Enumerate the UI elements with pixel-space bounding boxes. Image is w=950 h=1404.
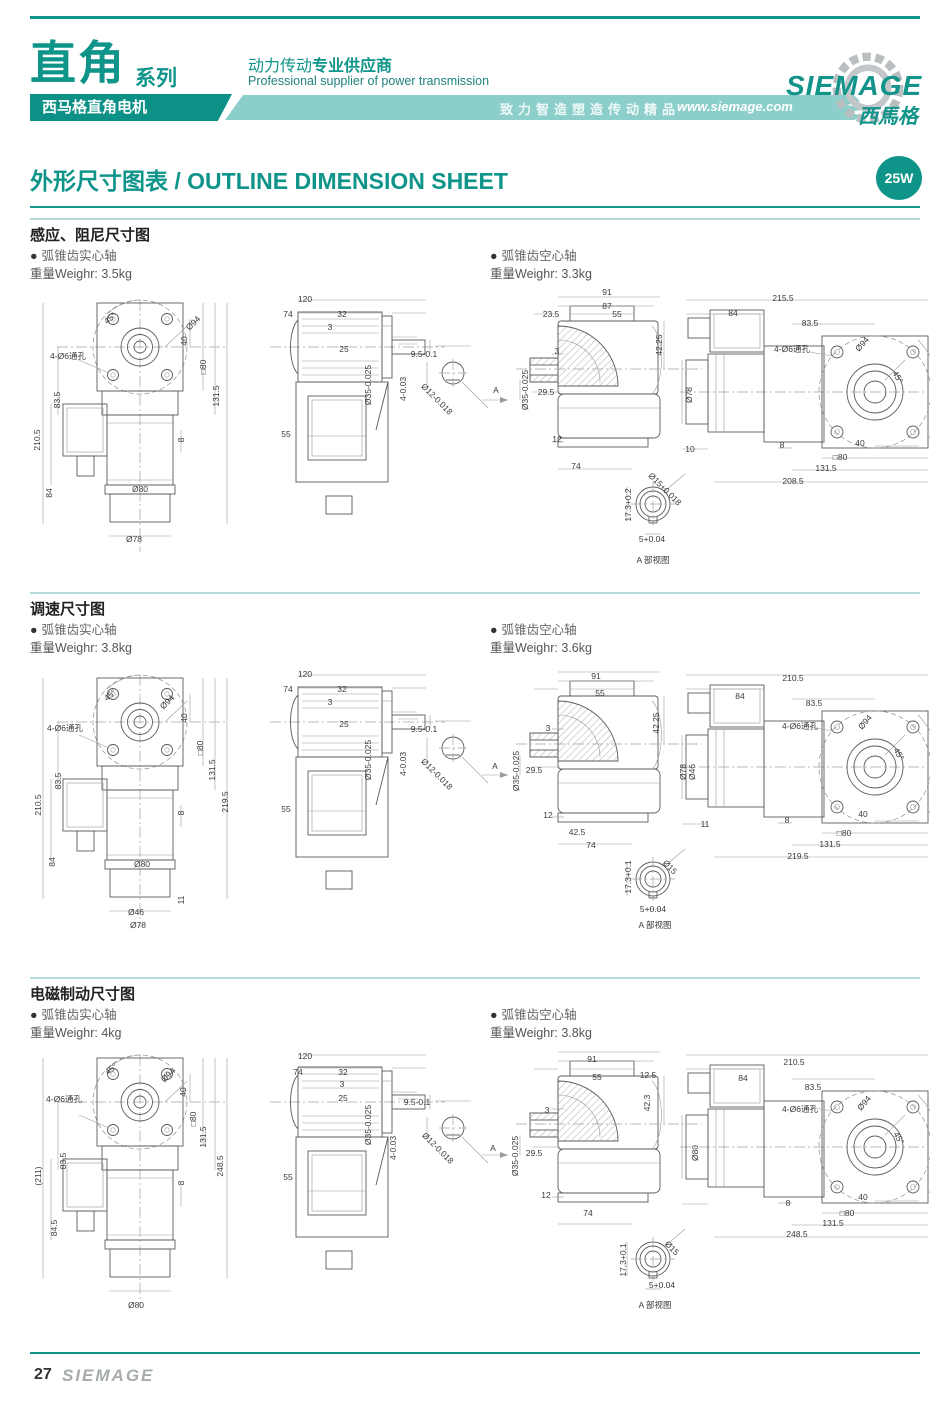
dim-label: 32 <box>337 684 346 694</box>
bullet-solid-shaft: ●弧锥齿实心轴 <box>30 619 117 638</box>
dim-label: 83.5 <box>806 698 823 708</box>
dim-label: 8 <box>785 815 790 825</box>
dim-label: 11 <box>701 819 710 829</box>
dim-label: 9.5-0.1 <box>404 1097 430 1107</box>
dim-label: 17.3+0.1 <box>618 1243 628 1276</box>
bullet-hollow-shaft: ●弧锥齿空心轴 <box>490 245 577 264</box>
dim-label: 83.5 <box>805 1082 822 1092</box>
logo-text: SIEMAGE <box>786 70 922 102</box>
section-divider <box>30 218 920 220</box>
dim-label: 5+0.04 <box>640 904 666 914</box>
dim-label: Ø35-0.025 <box>511 751 521 791</box>
dim-label: 131.5 <box>207 759 217 780</box>
dim-label: A <box>492 761 498 771</box>
dim-label: Ø46 <box>128 907 144 917</box>
dim-label: 84 <box>735 691 744 701</box>
dim-label: Ø78 <box>684 387 694 403</box>
dim-label: Ø35-0.025 <box>363 365 373 405</box>
bullet-icon: ● <box>30 623 38 637</box>
dim-label: 25 <box>339 344 348 354</box>
bullet-label: 弧锥齿空心轴 <box>502 249 577 263</box>
dim-label: 40 <box>179 713 189 722</box>
catalog-page: 直角 系列 西马格直角电机 致力智造塑造传动精品 www.siemage.com… <box>0 0 950 1404</box>
dim-label: 29.5 <box>526 1148 543 1158</box>
dim-label: 84 <box>738 1073 747 1083</box>
bullet-label: 弧锥齿实心轴 <box>42 623 117 637</box>
section-divider <box>30 592 920 594</box>
dim-label: 9.5-0.1 <box>411 724 437 734</box>
dim-label: Ø80 <box>134 859 150 869</box>
weight-label: 重量Weighr: 3.8kg <box>490 1022 592 1041</box>
dim-label: 4-Ø6通孔 <box>46 1093 82 1105</box>
section-title: 调速尺寸图 <box>30 598 105 619</box>
dim-label: 3 <box>340 1079 345 1089</box>
dim-label: 248.5 <box>786 1229 807 1239</box>
dim-label: A <box>490 1143 496 1153</box>
bullet-icon: ● <box>490 623 498 637</box>
dim-label: Ø78 <box>130 920 146 930</box>
dim-label: 219.5 <box>220 791 230 812</box>
weight-label: 重量Weighr: 3.3kg <box>490 263 592 282</box>
dim-label: 3 <box>555 346 560 356</box>
dim-label: 40 <box>855 438 864 448</box>
dim-label: 55 <box>595 688 604 698</box>
section-divider <box>30 977 920 979</box>
dim-label: 17.3+0.2 <box>623 488 633 521</box>
dim-label: 55 <box>592 1072 601 1082</box>
dim-label: 210.5 <box>782 673 803 683</box>
dim-label: 40 <box>179 336 189 345</box>
dim-label: 8 <box>176 438 186 443</box>
dim-label: 25 <box>338 1093 347 1103</box>
dim-label: 74 <box>293 1067 302 1077</box>
dim-label: 42.3 <box>642 1095 652 1112</box>
dim-label: 4-Ø6通孔 <box>774 343 810 355</box>
top-rule <box>30 16 920 19</box>
bullet-label: 弧锥齿实心轴 <box>42 1008 117 1022</box>
dim-label: 4-Ø6通孔 <box>47 722 83 734</box>
dim-label: 83.5 <box>58 1153 68 1170</box>
bullet-solid-shaft: ●弧锥齿实心轴 <box>30 245 117 264</box>
dim-label: 8 <box>176 811 186 816</box>
dim-label: 74 <box>571 461 580 471</box>
page-number: 27 <box>34 1366 52 1384</box>
dim-label: 8 <box>176 1181 186 1186</box>
band-slogan: 致力智造塑造传动精品 <box>500 99 680 118</box>
dim-label: Ø80 <box>128 1300 144 1310</box>
dim-label: 25 <box>339 719 348 729</box>
dim-label: □80 <box>188 1112 198 1127</box>
dim-label: 23.5 <box>543 309 560 319</box>
dim-label: 3 <box>545 1105 550 1115</box>
title-rule <box>30 206 920 208</box>
weight-label: 重量Weighr: 3.6kg <box>490 637 592 656</box>
dim-label: 32 <box>337 309 346 319</box>
subtitle-box: 西马格直角电机 <box>30 94 232 121</box>
dim-label: Ø80 <box>690 1145 700 1161</box>
dim-label: 74 <box>586 840 595 850</box>
dim-label: 42.5 <box>569 827 586 837</box>
dim-label: □80 <box>833 452 848 462</box>
technical-drawing: 45°Ø944-Ø6通孔40□80131.583.5210.5219.5884Ø… <box>30 663 930 953</box>
dim-label: 84 <box>728 308 737 318</box>
dim-label: 4-Ø6通孔 <box>50 350 86 362</box>
dim-label: 12.5 <box>640 1070 657 1080</box>
weight-label: 重量Weighr: 3.5kg <box>30 263 132 282</box>
dim-label: 4-Ø6通孔 <box>782 1103 818 1115</box>
dim-label: 29.5 <box>538 387 555 397</box>
series-title: 直角 <box>30 40 126 86</box>
technical-drawing: 45°Ø944-Ø6通孔40□80131.5210.583.5848Ø80Ø78… <box>30 288 930 578</box>
logo-cn: 西馬格 <box>858 100 918 129</box>
bullet-icon: ● <box>490 249 498 263</box>
section-title: 感应、阻尼尺寸图 <box>30 224 150 245</box>
dim-label: 55 <box>281 804 290 814</box>
dim-label: 248.5 <box>215 1155 225 1176</box>
dim-label: 83.5 <box>53 773 63 790</box>
dim-label: A 部视图 <box>636 554 669 566</box>
dim-label: 210.5 <box>783 1057 804 1067</box>
dim-label: 42.25 <box>651 712 661 733</box>
dim-label: 5+0.04 <box>639 534 665 544</box>
footer-rule <box>30 1352 920 1354</box>
dim-label: A 部视图 <box>638 919 671 931</box>
dim-label: 40 <box>858 1192 867 1202</box>
bullet-label: 弧锥齿空心轴 <box>502 623 577 637</box>
bullet-label: 弧锥齿空心轴 <box>502 1008 577 1022</box>
dim-label: 3 <box>328 697 333 707</box>
dim-label: 10 <box>685 444 694 454</box>
dim-label: 131.5 <box>819 839 840 849</box>
website-link[interactable]: www.siemage.com <box>677 99 793 114</box>
dim-label: 4-0.03 <box>398 752 408 776</box>
dim-label: 210.5 <box>33 794 43 815</box>
dim-label: 29.5 <box>526 765 543 775</box>
dim-label: 74 <box>283 684 292 694</box>
dim-label: Ø80 <box>132 484 148 494</box>
dim-label: 83.5 <box>52 392 62 409</box>
dim-label: 83.5 <box>802 318 819 328</box>
dim-label: 55 <box>281 429 290 439</box>
dim-label: 4-0.03 <box>398 377 408 401</box>
dim-label: 91 <box>587 1054 596 1064</box>
footer-logo: SIEMAGE <box>62 1366 154 1386</box>
section-induction-damping: 感应、阻尼尺寸图 ●弧锥齿实心轴 重量Weighr: 3.5kg ●弧锥齿空心轴… <box>0 218 950 592</box>
dim-label: 12 <box>552 434 561 444</box>
dim-label: 3 <box>328 322 333 332</box>
dim-label: 210.5 <box>32 429 42 450</box>
dim-label: 208.5 <box>782 476 803 486</box>
dim-label: 131.5 <box>211 385 221 406</box>
bullet-label: 弧锥齿实心轴 <box>42 249 117 263</box>
dim-label: 12 <box>541 1190 550 1200</box>
dim-label: 32 <box>338 1067 347 1077</box>
dim-label: 91 <box>602 287 611 297</box>
dim-label: 5+0.04 <box>649 1280 675 1290</box>
dim-label: Ø78 <box>126 534 142 544</box>
dim-label: 3 <box>546 723 551 733</box>
dim-label: 12 <box>543 810 552 820</box>
dim-label: □80 <box>195 741 205 756</box>
technical-drawing: 45°Ø944-Ø6通孔40□80131.583.5(211)248.5884.… <box>30 1043 930 1333</box>
dim-label: 55 <box>283 1172 292 1182</box>
dim-label: 4-0.03 <box>388 1136 398 1160</box>
bullet-icon: ● <box>30 1008 38 1022</box>
slogan-en: Professional supplier of power transmiss… <box>248 74 489 88</box>
dim-label: 131.5 <box>198 1126 208 1147</box>
dim-label: 74 <box>283 309 292 319</box>
dim-label: 91 <box>591 671 600 681</box>
weight-label: 重量Weighr: 3.8kg <box>30 637 132 656</box>
bullet-solid-shaft: ●弧锥齿实心轴 <box>30 1004 117 1023</box>
bullet-icon: ● <box>30 249 38 263</box>
dim-label: 219.5 <box>787 851 808 861</box>
dim-label: (211) <box>33 1166 43 1185</box>
page-title: 外形尺寸图表 / OUTLINE DIMENSION SHEET <box>30 162 508 196</box>
dim-label: 74 <box>583 1208 592 1218</box>
section-title: 电磁制动尺寸图 <box>30 983 135 1004</box>
dim-label: Ø35-0.025 <box>520 370 530 410</box>
dim-label: 120 <box>298 669 312 679</box>
dim-label: 120 <box>298 1051 312 1061</box>
dim-label: 8 <box>780 440 785 450</box>
dim-label: 84 <box>47 857 57 866</box>
slogan-cn-regular: 动力传动 <box>248 58 312 75</box>
dim-label: 120 <box>298 294 312 304</box>
dim-label: A <box>493 385 499 395</box>
bullet-hollow-shaft: ●弧锥齿空心轴 <box>490 1004 577 1023</box>
section-electromagnetic-brake: 电磁制动尺寸图 ●弧锥齿实心轴 重量Weighr: 4kg ●弧锥齿空心轴 重量… <box>0 977 950 1352</box>
dim-label: □80 <box>198 360 208 375</box>
slogan-cn-bold: 专业供应商 <box>312 58 392 75</box>
dim-label: Ø46 <box>687 764 697 780</box>
weight-label: 重量Weighr: 4kg <box>30 1022 121 1041</box>
dim-label: 84.5 <box>49 1220 59 1237</box>
dim-label: 40 <box>178 1087 188 1096</box>
slogan-cn: 动力传动专业供应商 <box>248 52 392 76</box>
dim-label: 8 <box>786 1198 791 1208</box>
dim-label: Ø35-0.025 <box>510 1136 520 1176</box>
dim-label: 40 <box>858 809 867 819</box>
dim-label: □80 <box>840 1208 855 1218</box>
dim-label: □80 <box>837 828 852 838</box>
power-badge: 25W <box>876 156 922 200</box>
dim-label: Ø35-0.025 <box>363 1105 373 1145</box>
section-speed-control: 调速尺寸图 ●弧锥齿实心轴 重量Weighr: 3.8kg ●弧锥齿空心轴 重量… <box>0 592 950 977</box>
dim-label: 17.3+0.1 <box>623 860 633 893</box>
dim-label: 131.5 <box>822 1218 843 1228</box>
dim-label: 42.25 <box>654 334 664 355</box>
bullet-hollow-shaft: ●弧锥齿空心轴 <box>490 619 577 638</box>
dim-label: 11 <box>176 896 186 905</box>
dim-label: Ø35-0.025 <box>363 740 373 780</box>
dim-label: 55 <box>612 309 621 319</box>
dim-label: A 部视图 <box>638 1299 671 1311</box>
dim-label: 87 <box>602 301 611 311</box>
bullet-icon: ● <box>490 1008 498 1022</box>
dim-label: 9.5-0.1 <box>411 349 437 359</box>
dim-label: 84 <box>44 488 54 497</box>
dim-label: 4-Ø6通孔 <box>782 720 818 732</box>
series-suffix: 系列 <box>135 62 177 92</box>
dim-label: 131.5 <box>815 463 836 473</box>
dim-label: 215.5 <box>772 293 793 303</box>
